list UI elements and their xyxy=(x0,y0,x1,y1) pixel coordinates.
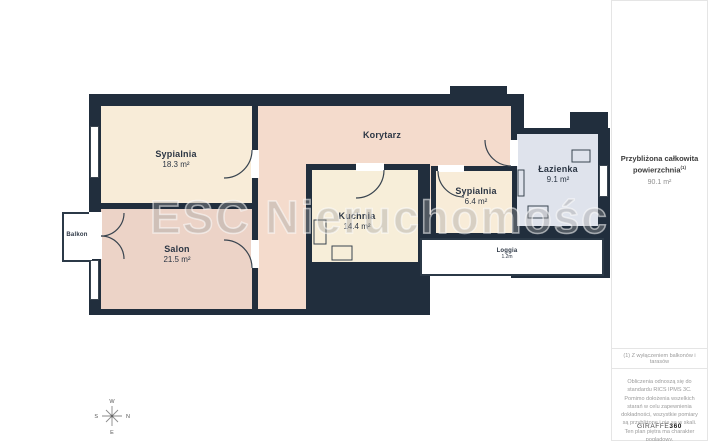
compass-s: S xyxy=(94,414,98,420)
label-balcony: Balkon xyxy=(66,232,87,238)
floorplan-page: W N E S Sypialnia 18.3 m² Salon 21.5 m² … xyxy=(0,0,710,441)
doorway-bathroom xyxy=(510,140,518,166)
doorway-bedroom2 xyxy=(438,165,464,172)
giraffe360-logo: GIRAFFE360 xyxy=(612,423,707,430)
watermark: ESC Nieruchomości xyxy=(150,190,624,244)
doorway-kitchen xyxy=(356,163,384,171)
doorway-balcony xyxy=(89,212,102,259)
window-bedroom1 xyxy=(90,126,99,178)
total-area-title: Przybliżona całkowita powierzchnia(1) xyxy=(617,154,702,176)
label-corridor: Korytarz xyxy=(363,130,401,140)
label-bathroom: Łazienka 9.1 m² xyxy=(538,164,578,184)
footnote-marker: (1) xyxy=(681,165,687,170)
compass-rose: W N E S xyxy=(94,399,130,436)
info-panel: Przybliżona całkowita powierzchnia(1) 90… xyxy=(611,0,708,441)
label-bedroom-1: Sypialnia 18.3 m² xyxy=(155,149,196,169)
label-loggia: Loggia 1.2m xyxy=(497,248,518,260)
compass-n: N xyxy=(126,414,130,420)
divider xyxy=(612,368,707,369)
divider xyxy=(612,348,707,349)
wall-stub-topright xyxy=(570,112,608,134)
wall-notch-top xyxy=(450,86,507,106)
doorway-living xyxy=(251,240,259,268)
label-living: Salon 21.5 m² xyxy=(163,244,190,264)
disclaimer-text: Obliczenia odnoszą się do standardu RICS… xyxy=(620,378,699,441)
window-living xyxy=(90,260,99,300)
compass-e: E xyxy=(110,430,114,436)
footnote-text: (1) Z wyłączeniem balkonów i tarasów xyxy=(615,353,704,365)
total-area-value: 90.1 m² xyxy=(612,179,707,186)
doorway-bedroom1 xyxy=(251,150,259,178)
compass-w: W xyxy=(109,399,115,405)
